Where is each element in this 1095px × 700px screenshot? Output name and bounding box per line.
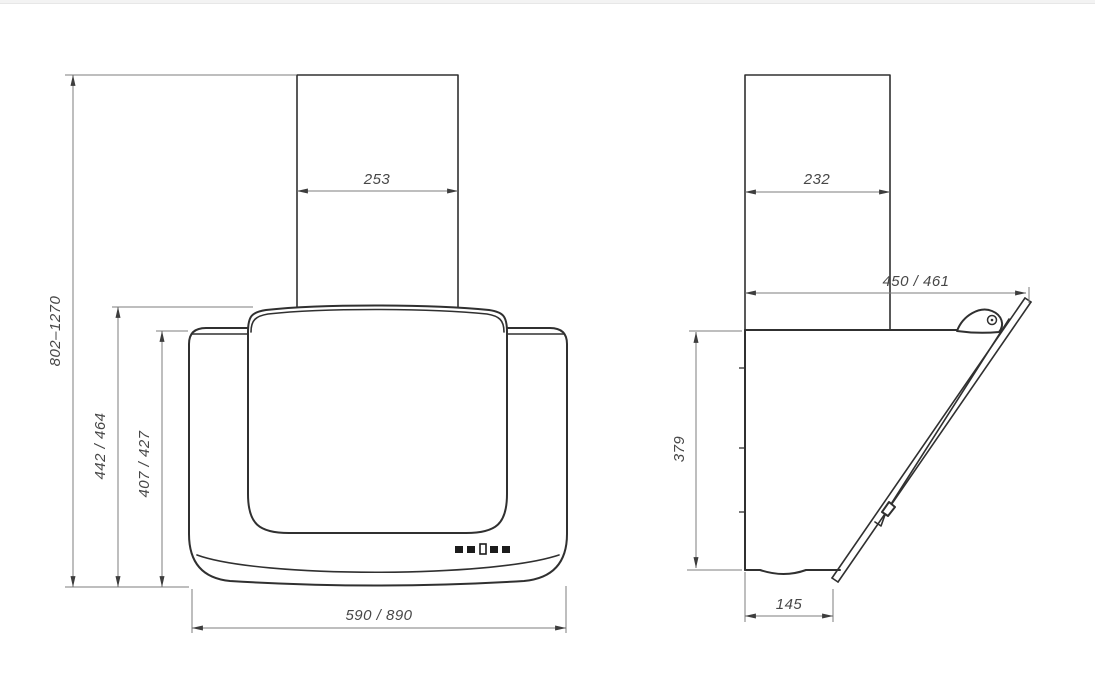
control-button-1: [455, 546, 463, 553]
dim-label-side-body-height: 379: [671, 436, 688, 463]
dim-front-chimney-width: 253: [297, 171, 458, 191]
dim-side-body-height: 379: [671, 331, 742, 570]
glass-top-end-cap: [1025, 298, 1031, 302]
dim-label-visor-height: 442 / 464: [92, 412, 109, 479]
glass-bottom-end-cap: [832, 578, 838, 582]
control-button-2: [467, 546, 475, 553]
dim-label-bottom-depth: 145: [776, 596, 803, 613]
hinge-pivot-center: [991, 319, 994, 322]
dim-label-overall-depth: 450 / 461: [882, 273, 949, 290]
dim-side-chimney-depth: 232: [745, 171, 890, 192]
glass-clip: [882, 502, 895, 516]
dim-label-body-height: 407 / 427: [136, 430, 153, 497]
dim-front-body-height: 407 / 427: [136, 331, 188, 587]
side-view: 232 450 / 461 379 145: [671, 75, 1031, 622]
dim-label-body-width: 590 / 890: [345, 607, 412, 624]
drawing-canvas: 253 802–1270 442 / 464 407 / 427: [0, 0, 1095, 700]
inner-panel-edge: [875, 319, 1009, 526]
dim-label-chimney-depth: 232: [803, 171, 831, 188]
side-back-edge-ticks: [739, 368, 744, 512]
control-button-3: [490, 546, 498, 553]
side-body-bottom-edge: [745, 570, 840, 574]
side-glass-panel: [832, 298, 1031, 582]
front-visor-outline: [248, 306, 507, 534]
front-chimney-outline: [297, 75, 458, 311]
front-view: 253 802–1270 442 / 464 407 / 427: [47, 75, 567, 633]
dim-label-mounting-height: 802–1270: [47, 295, 64, 366]
glass-outer-edge: [838, 302, 1031, 582]
side-chimney-outline: [745, 75, 890, 330]
hinge: [957, 310, 1002, 333]
dim-front-body-width: 590 / 890: [192, 586, 566, 633]
dim-side-overall-depth: 450 / 461: [745, 273, 1029, 303]
control-button-4: [502, 546, 510, 553]
dim-label-chimney-width: 253: [363, 171, 391, 188]
cooker-hood-technical-drawing: 253 802–1270 442 / 464 407 / 427: [0, 0, 1095, 700]
dim-side-bottom-depth: 145: [745, 572, 833, 622]
